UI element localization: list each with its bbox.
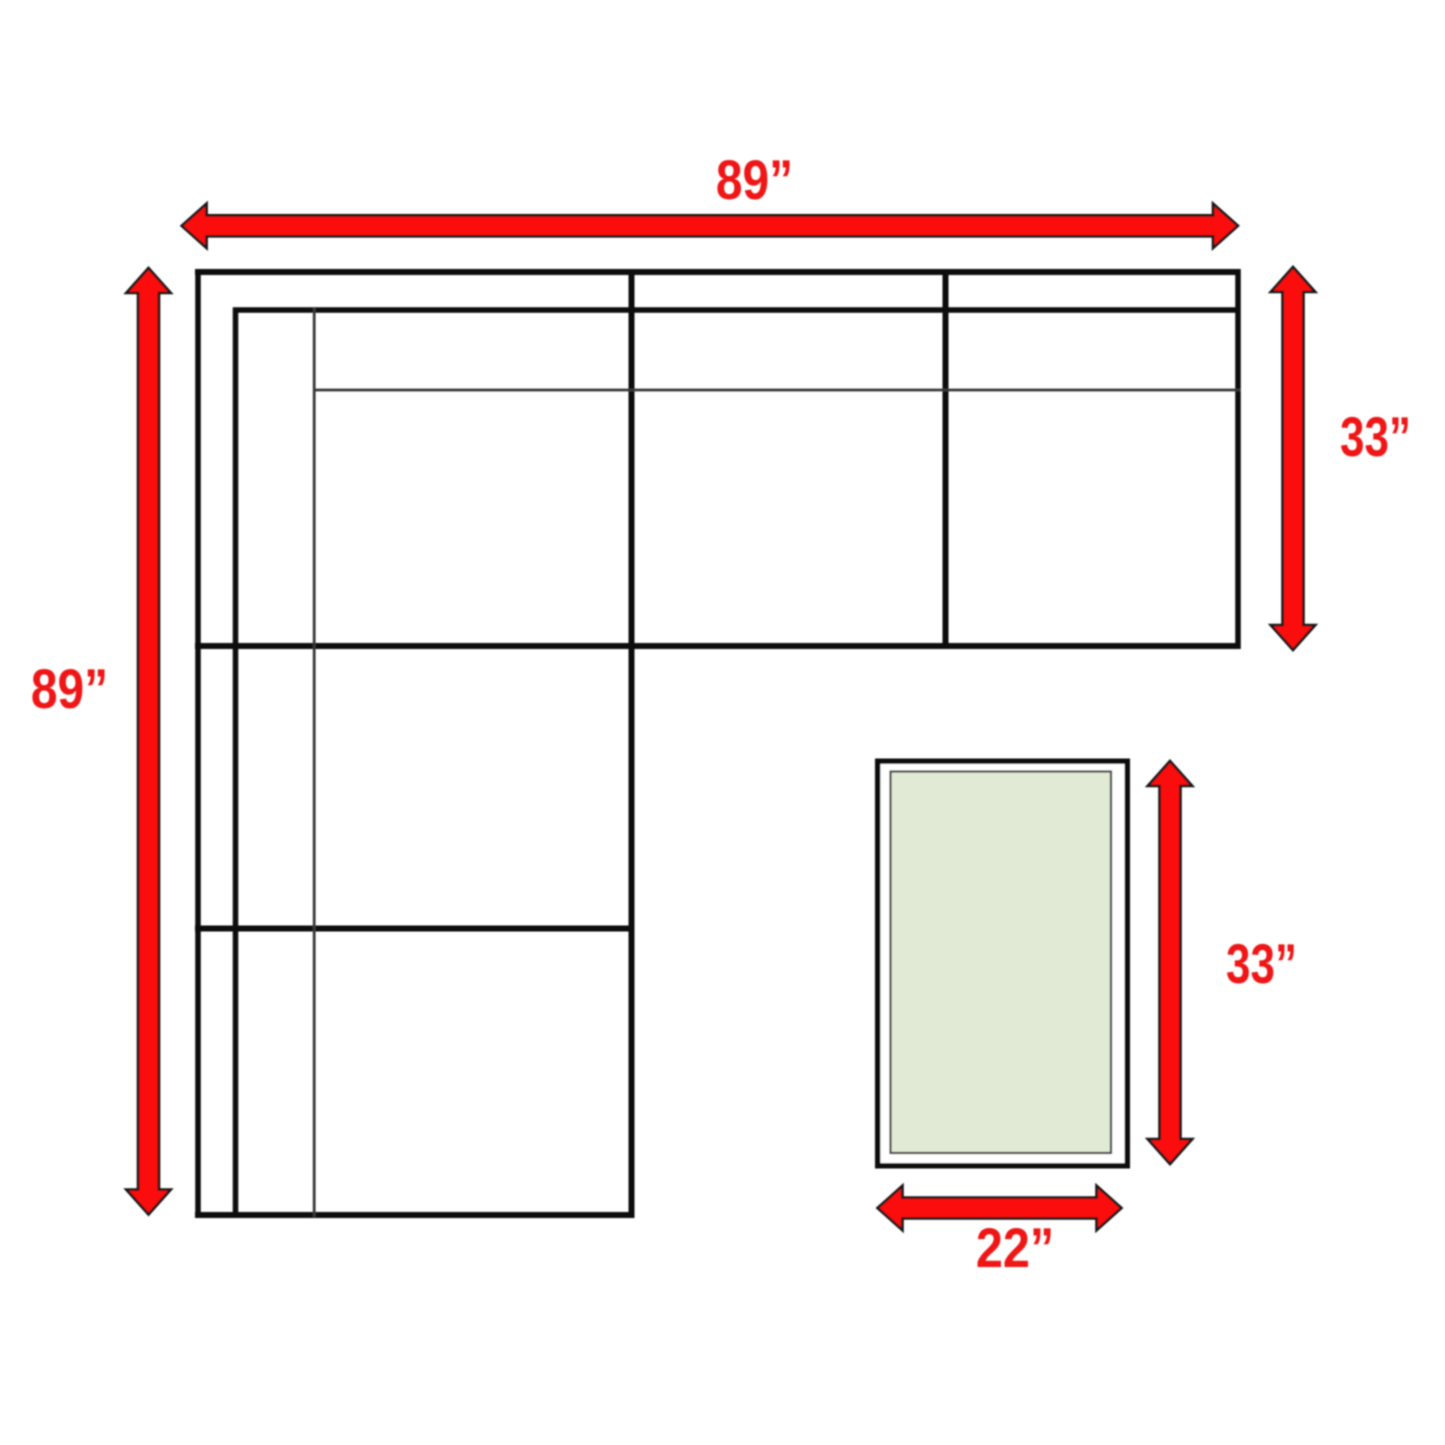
svg-text:89”: 89” [31, 659, 108, 721]
svg-text:33”: 33” [1226, 933, 1297, 995]
svg-text:22”: 22” [976, 1218, 1054, 1280]
svg-text:33”: 33” [1340, 406, 1411, 468]
svg-text:89”: 89” [716, 150, 793, 212]
